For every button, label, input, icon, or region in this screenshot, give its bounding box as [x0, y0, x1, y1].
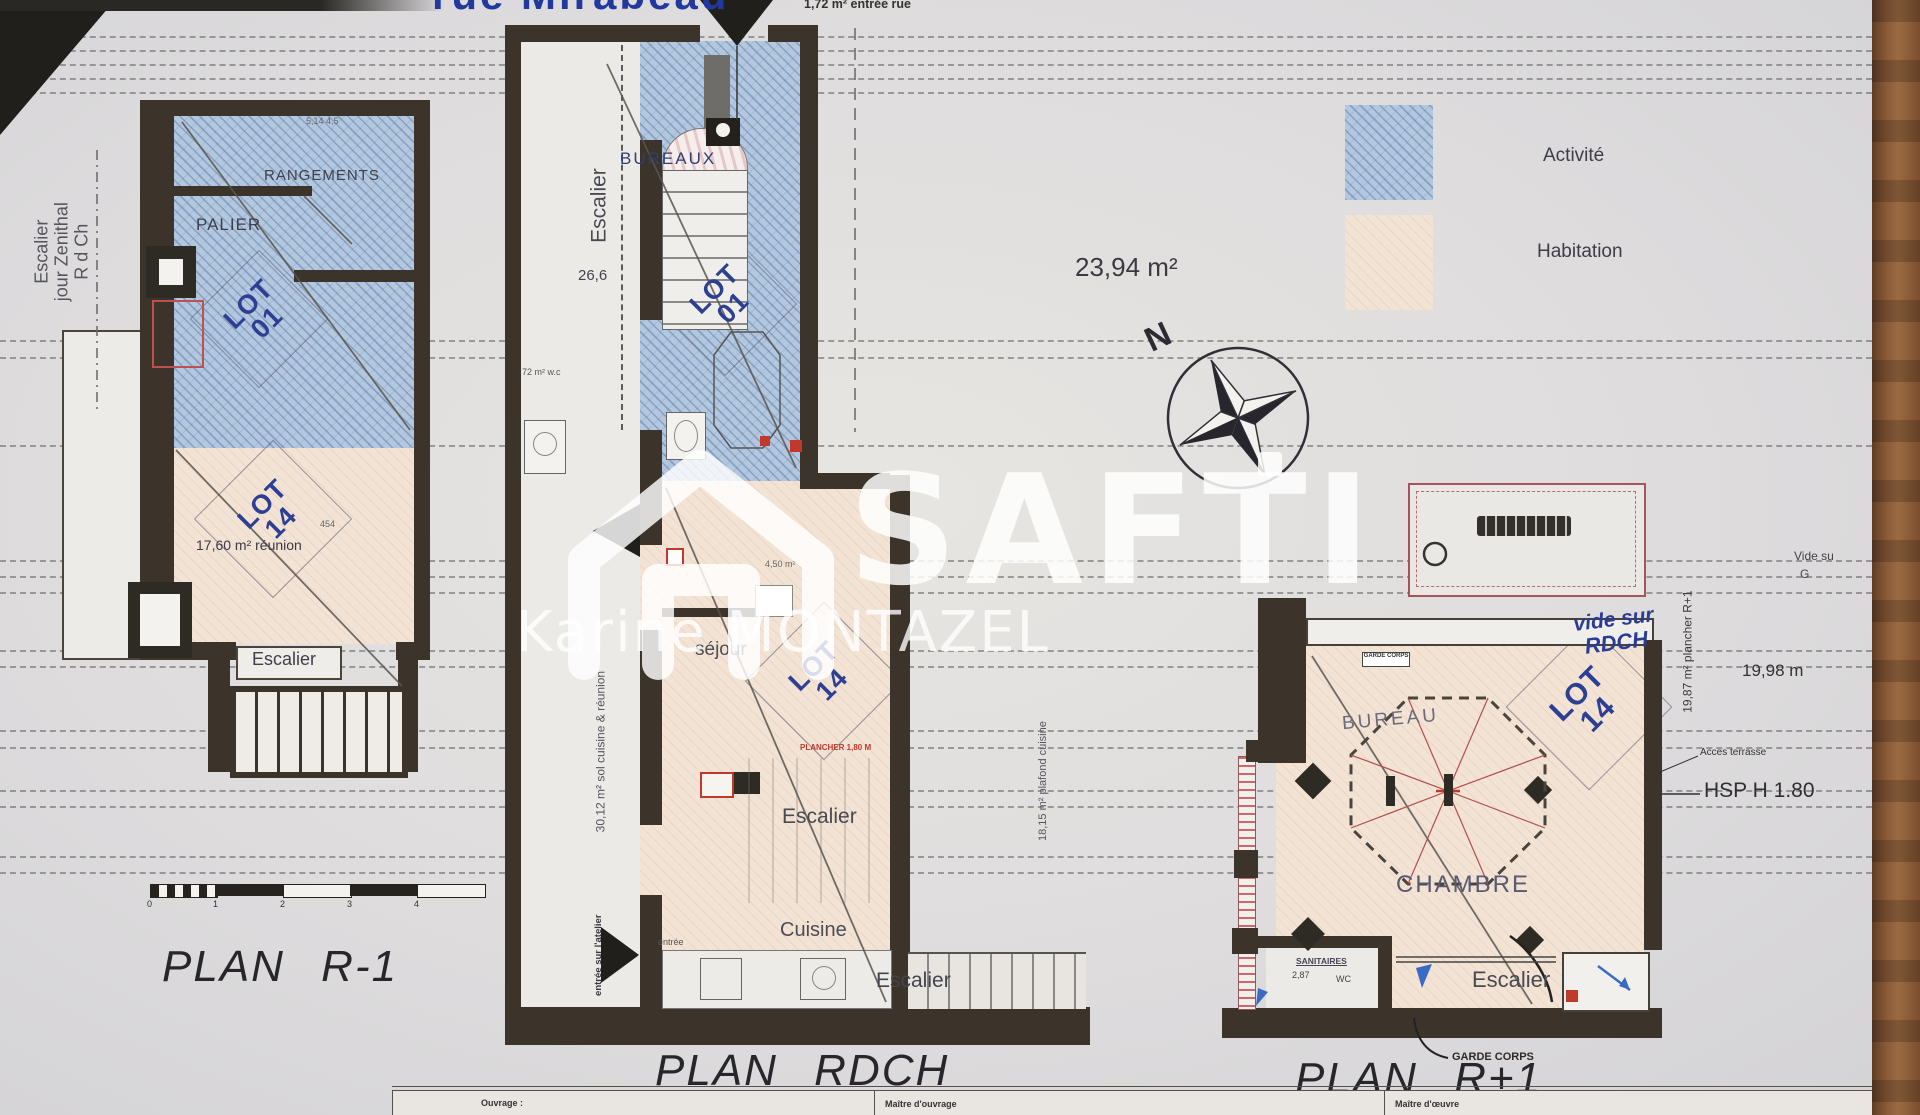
table-wood-edge	[1872, 0, 1920, 1115]
rp1-wc-label: WC	[1336, 975, 1351, 984]
scale-bar-segment	[350, 884, 417, 896]
r1-partition	[294, 270, 414, 282]
rdch-wc-note: 72 m² w.c	[522, 368, 561, 377]
vertical-text: 18,15 m² plafond cuisine	[1037, 676, 1049, 886]
rdch-appliance	[700, 958, 742, 1000]
rdch-wall-top-left	[505, 25, 700, 42]
rp1-window-strip	[1238, 756, 1256, 1010]
r1-window-box	[128, 582, 192, 658]
rdch-door-red	[700, 772, 734, 798]
rdch-stairs-mid	[748, 758, 888, 903]
r1-wall-left	[140, 100, 174, 660]
r1-side-note: Escalier jour Zenithal R d Ch	[32, 177, 91, 327]
rp1-wall-block	[1246, 740, 1264, 762]
compass-north-label: N	[1140, 316, 1177, 359]
vertical-text: Escalier	[587, 136, 610, 276]
r1-partition	[174, 186, 312, 196]
rdch-corridor-wall	[640, 895, 662, 1007]
scale-tick: 2	[280, 900, 285, 909]
r1-plan-title: PLAN R-1	[162, 942, 398, 992]
garde-box-text: GARDE CORPS	[1363, 653, 1409, 659]
rdch-dim-266: 26,6	[578, 268, 607, 284]
rdch-wall-top-right	[768, 25, 818, 42]
rp1-wall-left-top	[1258, 598, 1306, 763]
rdch-symbol-red	[666, 548, 684, 566]
rdch-wall-right-upper	[800, 41, 818, 481]
rp1-plancher-note: 19,87 m² plancher R+1	[1681, 537, 1694, 767]
side-note-line: R d Ch	[72, 177, 92, 327]
dashed-line	[0, 78, 1872, 80]
rdch-escalier-bottom: Escalier	[876, 970, 951, 992]
r1-zone-activite	[174, 116, 414, 448]
rp1-g: G	[1800, 568, 1809, 581]
rp1-plafond-note: 18,15 m² plafond cuisine	[1037, 676, 1049, 886]
rp1-acces-terrasse: Acces terrasse	[1700, 748, 1766, 759]
vertical-text: 19,87 m² plancher R+1	[1681, 537, 1694, 767]
r1-reunion-area: 17,60 m² réunion	[196, 538, 302, 553]
scale-bar-segment	[417, 884, 486, 898]
rdch-room-cuisine: Cuisine	[780, 920, 847, 941]
legend-swatch-activite	[1345, 105, 1433, 200]
rp1-terrace-access-box	[1562, 952, 1650, 1012]
r1-dim-top: 5,14 4,5	[306, 117, 339, 126]
rp1-wall-block	[1234, 850, 1258, 878]
rdch-symbol-red	[790, 440, 802, 452]
rp1-sanitaires-label: SANITAIRES	[1296, 957, 1347, 966]
paper-edge-shadow	[0, 0, 445, 11]
dashed-line	[0, 64, 1872, 66]
r1-wall-right	[414, 100, 430, 660]
rdch-appliance-burner	[812, 966, 836, 990]
rdch-room-bureaux: BUREAUX	[620, 150, 716, 168]
title-block-maitre-oeuvre: Maître d'œuvre	[1395, 1100, 1459, 1109]
rp1-dim-287: 2,87	[1292, 971, 1310, 980]
rp1-sanitaires-wall	[1252, 936, 1392, 948]
r1-room-rangements: RANGEMENTS	[264, 168, 380, 184]
rp1-vide-sur-rdch: vide sur RDCH	[1548, 600, 1683, 663]
r1-room-palier: PALIER	[196, 216, 261, 234]
rdch-plan-title: PLAN RDCH	[655, 1046, 949, 1096]
watermark-agent: Karine MONTAZEL	[516, 600, 1050, 665]
rdch-corridor-escalier: Escalier	[587, 136, 610, 276]
rdch-plancher-note: PLANCHER 1,80 M	[800, 744, 871, 752]
rdch-plafond-small: 4,50 m²	[765, 560, 796, 569]
rp1-wall-right	[1644, 640, 1662, 950]
rdch-corridor-dash	[621, 45, 623, 430]
photo-corner-shadow	[0, 0, 115, 135]
legend-label-activite: Activité	[1543, 146, 1604, 166]
r1-escalier-label: Escalier	[252, 650, 316, 669]
scale-bar-segment	[216, 884, 283, 896]
rp1-vide-su: Vide su	[1794, 550, 1834, 563]
rp1-escalier-label: Escalier	[1472, 968, 1550, 991]
rdch-wall-left	[505, 25, 521, 1007]
r1-stair-wall-left	[208, 642, 230, 772]
legend-swatch-habitation	[1345, 215, 1433, 310]
area-note: 23,94 m²	[1075, 254, 1178, 281]
rp1-dim-1998: 19,98 m	[1742, 662, 1803, 680]
floor-plan-scan: rue Mirabeau 1,72 m² entrée rue Activité…	[0, 0, 1920, 1115]
title-block-divider	[1384, 1091, 1385, 1115]
scale-bar-fine	[150, 884, 218, 898]
vertical-text: entrée sur l'atelier	[594, 907, 604, 1003]
rp1-terrace-inner	[1416, 491, 1636, 587]
r1-window-box	[146, 246, 196, 298]
watermark-i-dot	[1258, 452, 1282, 476]
scale-bar-segment	[283, 884, 352, 898]
entry-area-note: 1,72 m² entrée rue	[804, 0, 911, 11]
scale-tick: 4	[414, 900, 419, 909]
rp1-hsp: HSP H 1.80	[1704, 780, 1815, 802]
side-note-line: jour Zenithal	[52, 177, 72, 327]
title-block-divider	[874, 1091, 875, 1115]
rp1-garde-box: GARDE CORPS	[1362, 652, 1410, 667]
dashed-line	[0, 36, 1872, 38]
rdch-wc-bowl	[674, 420, 698, 452]
title-block-topline	[392, 1086, 1872, 1087]
rdch-escalier-mid: Escalier	[782, 806, 857, 828]
rp1-wall-bottom	[1222, 1008, 1662, 1038]
title-block-ouvrage: Ouvrage :	[481, 1099, 523, 1108]
rp1-terrace-bar	[1477, 516, 1571, 536]
rdch-wall-bottom	[505, 1007, 1090, 1045]
title-block-maitre-ouvrage: Maître d'ouvrage	[885, 1100, 957, 1109]
rdch-counter	[662, 950, 892, 1009]
rdch-entree-note: entrée sur l'atelier	[594, 907, 604, 1003]
rdch-sink-bowl	[533, 432, 557, 456]
scale-tick: 0	[147, 900, 152, 909]
wood-grain	[1872, 0, 1920, 1115]
side-note-line: Escalier	[32, 177, 52, 327]
r1-dim-mid: 454	[320, 520, 335, 529]
legend-label-habitation: Habitation	[1537, 242, 1623, 262]
scale-tick: 3	[347, 900, 352, 909]
rdch-entree-small: entrée	[658, 938, 684, 947]
rp1-symbol-red	[1566, 990, 1578, 1002]
title-block: Ouvrage : Maître d'ouvrage Maître d'œuvr…	[392, 1090, 1874, 1115]
dashed-line	[0, 50, 1872, 52]
r1-stairs	[230, 686, 408, 778]
rdch-corridor-wall	[640, 430, 662, 545]
rdch-stair-post-circle	[716, 123, 730, 137]
scale-tick: 1	[213, 900, 218, 909]
rp1-sanitaires-wall	[1378, 936, 1392, 1012]
r1-red-outline	[152, 300, 204, 368]
dashed-line	[0, 92, 1872, 94]
r1-wall-top	[140, 100, 430, 116]
watermark-brand: SAFTI	[848, 442, 1379, 619]
rp1-room-chambre: CHAMBRE	[1396, 872, 1530, 897]
street-label: rue Mirabeau	[432, 0, 729, 17]
